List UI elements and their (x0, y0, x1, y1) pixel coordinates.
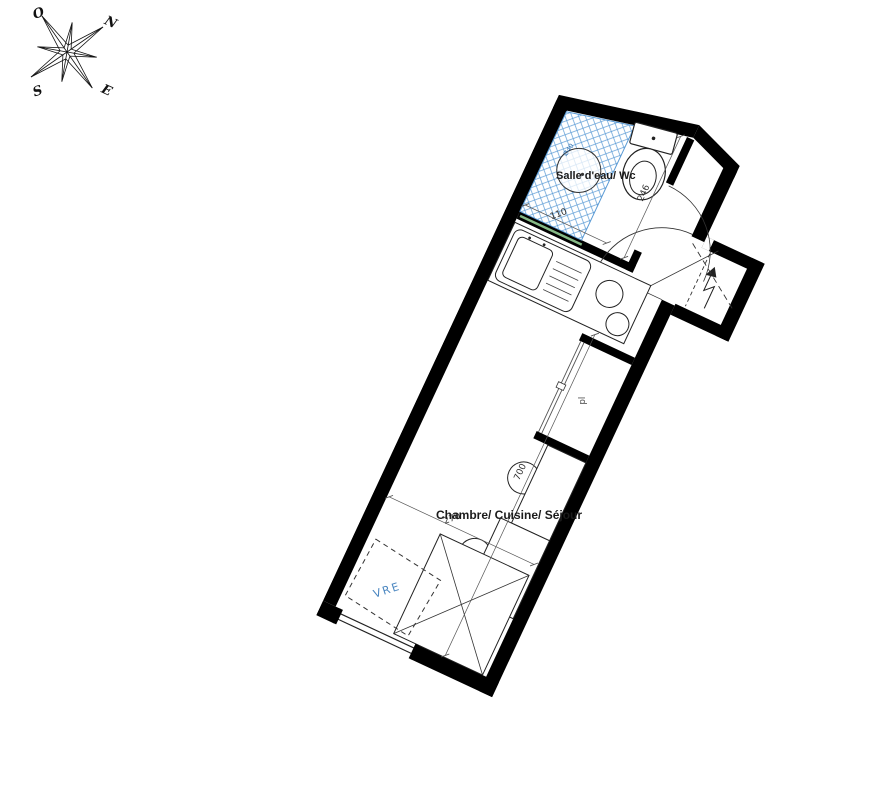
apartment-plan: Ø40 (311, 64, 809, 736)
main-room-label: Chambre/ Cuisine/ Séjour (436, 508, 582, 522)
closet: pl (536, 340, 611, 446)
compass-rose: N O S E (10, 0, 130, 110)
bathroom-label: Salle d'eau/ Wc (556, 170, 636, 182)
right-wall-upper (692, 166, 738, 243)
compass-south-label: S (31, 83, 45, 100)
right-wall-lower (479, 300, 674, 697)
floor-plan-page: N O S E (0, 0, 874, 800)
closet-label: pl (578, 397, 588, 405)
compass-north-label: N (101, 13, 120, 33)
entry-niche (670, 237, 764, 342)
compass-east-label: E (98, 82, 115, 101)
compass-star (31, 16, 103, 88)
shutter-label: VRE (372, 580, 403, 601)
